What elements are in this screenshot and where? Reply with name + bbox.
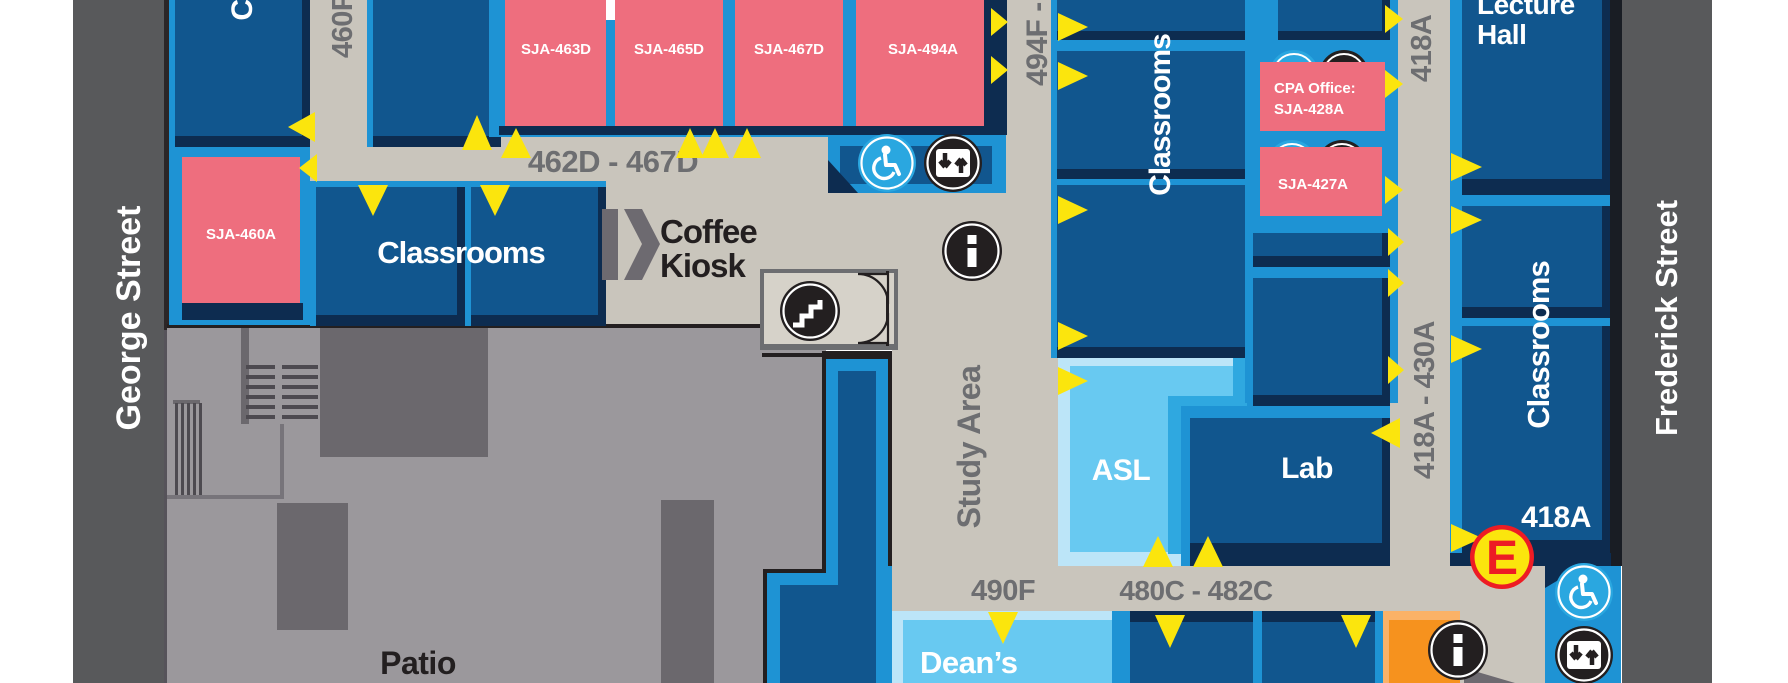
- svg-text:Coffee: Coffee: [660, 213, 757, 250]
- svg-text:George Street: George Street: [110, 206, 148, 431]
- svg-text:Patio: Patio: [380, 645, 456, 681]
- svg-text:490F: 490F: [971, 575, 1035, 607]
- svg-text:SJA-494A: SJA-494A: [888, 41, 958, 58]
- svg-text:SJA-465D: SJA-465D: [634, 41, 704, 58]
- svg-text:Frederick Street: Frederick Street: [1649, 200, 1684, 436]
- svg-text:E: E: [1486, 532, 1518, 585]
- svg-text:418A: 418A: [1406, 14, 1438, 82]
- svg-text:ASL: ASL: [1092, 454, 1151, 487]
- svg-text:CPA Office:: CPA Office:: [1274, 80, 1356, 97]
- svg-text:Classrooms: Classrooms: [377, 235, 544, 270]
- svg-text:Lecture: Lecture: [1477, 0, 1575, 20]
- svg-text:Dean’s: Dean’s: [920, 645, 1018, 680]
- svg-text:Lab: Lab: [1281, 452, 1333, 485]
- svg-text:SJA-467D: SJA-467D: [754, 41, 824, 58]
- svg-text:480C - 482C: 480C - 482C: [1119, 575, 1273, 606]
- svg-text:418A: 418A: [1521, 501, 1591, 534]
- svg-text:SJA-463D: SJA-463D: [521, 41, 591, 58]
- svg-text:SJA-460A: SJA-460A: [206, 226, 276, 243]
- svg-text:462D - 467D: 462D - 467D: [528, 144, 698, 179]
- svg-text:Study Area: Study Area: [951, 365, 987, 528]
- svg-text:Classrooms: Classrooms: [1144, 34, 1177, 196]
- svg-text:Classrooms: Classrooms: [1521, 261, 1556, 428]
- svg-text:C: C: [226, 0, 259, 21]
- svg-text:SJA-428A: SJA-428A: [1274, 101, 1344, 118]
- svg-text:Hall: Hall: [1477, 19, 1526, 50]
- svg-text:SJA-427A: SJA-427A: [1278, 176, 1348, 193]
- svg-text:494F -: 494F -: [1021, 2, 1054, 86]
- svg-text:460F: 460F: [327, 0, 359, 58]
- svg-text:418A - 430A: 418A - 430A: [1409, 321, 1441, 479]
- svg-text:Kiosk: Kiosk: [660, 247, 747, 284]
